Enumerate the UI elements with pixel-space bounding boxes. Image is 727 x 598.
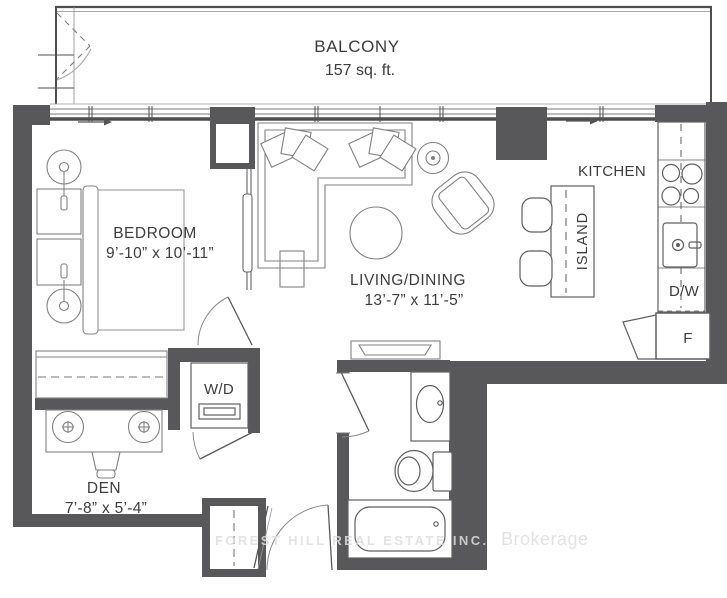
fridge (623, 313, 710, 359)
round-side-table (418, 143, 449, 174)
island-stool (520, 251, 552, 286)
coffee-table (350, 207, 402, 259)
nightstand (37, 189, 81, 234)
bathroom-fixtures (348, 372, 452, 558)
tv-console (351, 341, 440, 359)
nightstand (37, 239, 81, 285)
living-furniture (258, 123, 501, 359)
sliding-door-panel (243, 194, 252, 272)
bedroom-label: BEDROOM (113, 225, 197, 242)
washer-dryer-label: W/D (204, 381, 234, 398)
living-window-icon (255, 106, 496, 122)
living-dining-label: LIVING/DINING (350, 272, 466, 289)
den-label: DEN (87, 480, 121, 497)
bedroom-divider (243, 169, 252, 290)
bathroom-door-opening (335, 373, 351, 433)
kitchen-label: KITCHEN (578, 163, 646, 180)
kitchen-sink-icon (663, 223, 701, 267)
vanity-sink-icon (411, 372, 450, 441)
bedroom-furniture (36, 150, 184, 398)
kitchen-window-icon (547, 106, 655, 122)
den-dims-label: 7’-8” x 5’-4” (65, 500, 147, 517)
bed-headboard (83, 186, 98, 334)
bathtub-icon (348, 500, 452, 558)
laundry-door-icon (193, 432, 253, 459)
watermark-brand: FOREST HILL REAL ESTATE INC. (215, 533, 489, 548)
window-wall (50, 104, 711, 122)
bedroom-closet (36, 351, 167, 398)
desk-stool (92, 452, 120, 478)
desk-chair-icon (53, 412, 84, 443)
bedroom-window-icon (50, 106, 210, 122)
column-niche (216, 124, 249, 163)
desk-chair-icon (129, 412, 160, 443)
watermark-suffix: Brokerage (501, 529, 589, 549)
balcony-label: BALCONY (314, 37, 399, 56)
floor-plan: BALCONY 157 sq. ft. BEDROOM 9’-10” x 10’… (0, 0, 727, 598)
balcony-area-label: 157 sq. ft. (325, 62, 395, 79)
island-stool (522, 198, 552, 232)
floor-plan-drawing: BALCONY 157 sq. ft. BEDROOM 9’-10” x 10’… (0, 0, 727, 598)
bedroom-dims-label: 9’-10” x 10’-11” (106, 245, 214, 262)
island-label: ISLAND (575, 212, 591, 270)
bedroom-door-icon (198, 297, 252, 345)
living-dining-dims-label: 13’-7” x 11’-5” (365, 292, 464, 309)
dishwasher-label: D/W (669, 283, 700, 300)
fridge-label: F (683, 330, 692, 347)
armchair (425, 165, 501, 241)
den-furniture (46, 410, 162, 478)
toilet-icon (395, 451, 452, 492)
kitchen-fixtures (520, 122, 710, 359)
